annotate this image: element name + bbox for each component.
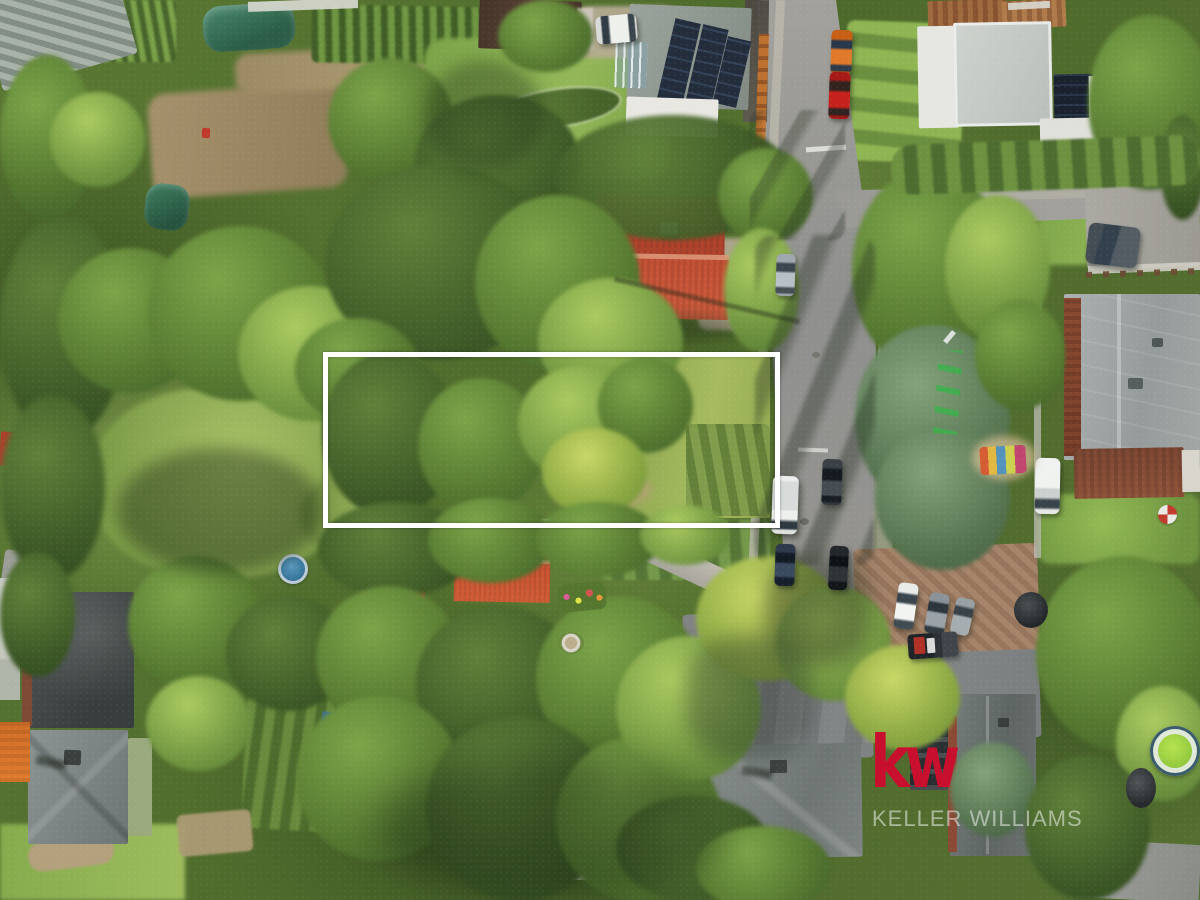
property-boundary-overlay: [323, 352, 780, 528]
brand-name: KELLER WILLIAMS: [872, 806, 1083, 832]
aerial-photo: kw KELLER WILLIAMS: [0, 0, 1200, 900]
kw-logo: kw: [870, 726, 954, 798]
keller-williams-watermark: kw KELLER WILLIAMS: [870, 734, 1200, 844]
